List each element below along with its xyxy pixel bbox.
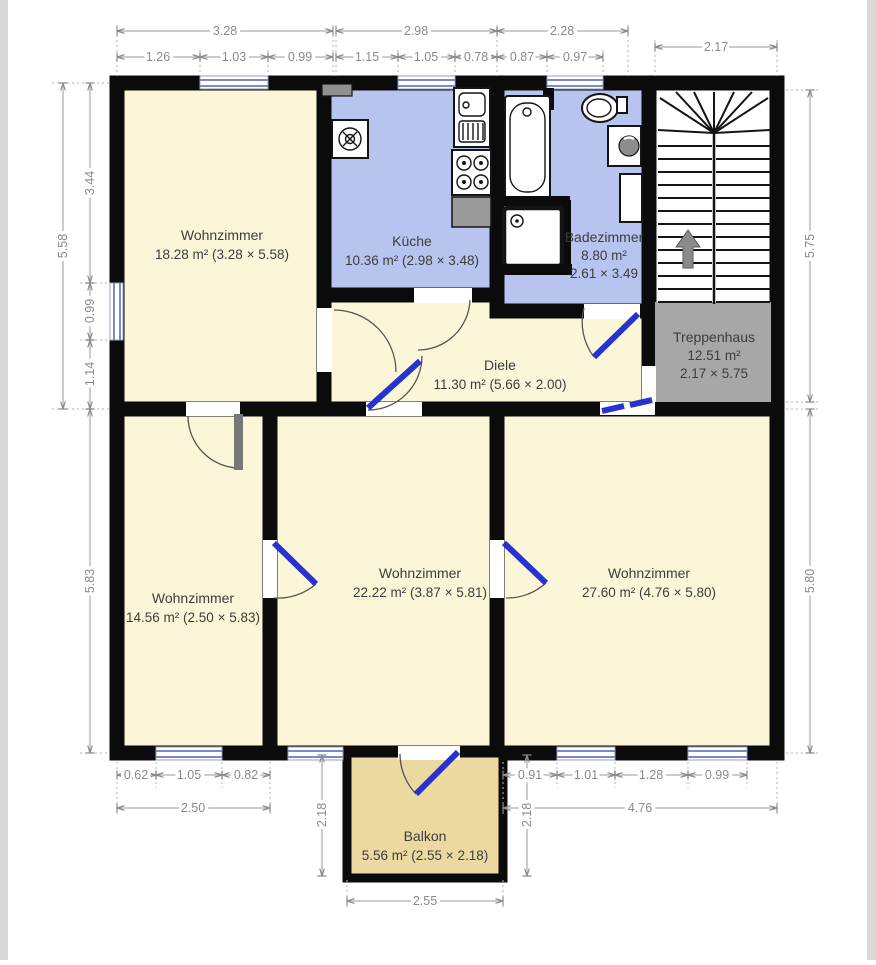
room-label-name: Wohnzimmer: [181, 227, 264, 243]
dim-label: 0.97: [563, 50, 587, 64]
room-wohnzimmer-bottom-left: [117, 409, 270, 753]
dim-label: 2.55: [413, 894, 437, 908]
dim-label: 1.03: [222, 50, 246, 64]
room-label-name: Küche: [392, 233, 432, 249]
window: [557, 747, 615, 760]
room-wohnzimmer-top-left: [117, 83, 324, 409]
dim-label: 2.17: [704, 40, 728, 54]
room-label-area: 12.51 m²: [687, 348, 741, 363]
room-label-area: 5.56 m² (2.55 × 2.18): [362, 848, 488, 863]
window: [288, 747, 343, 760]
dim-label: 1.26: [146, 50, 170, 64]
dim-label: 0.82: [234, 768, 258, 782]
room-label-area: 8.80 m²: [581, 248, 627, 263]
dim-label: 1.15: [355, 50, 379, 64]
dim-label: 5.80: [803, 569, 817, 593]
room-label-area: 22.22 m² (3.87 × 5.81): [353, 585, 487, 600]
dim-label: 0.91: [518, 768, 542, 782]
page-edge-left: [0, 0, 8, 960]
bathtub: [505, 96, 550, 198]
dim-label: 1.05: [414, 50, 438, 64]
dim-label: 0.78: [464, 50, 488, 64]
stove: [452, 150, 491, 195]
room-label-name: Wohnzimmer: [152, 590, 235, 606]
dim-label: 1.14: [83, 362, 97, 386]
window: [688, 747, 747, 760]
bathroom-sink: [608, 126, 641, 166]
room-label-name: Balkon: [404, 828, 447, 844]
dim-label: 5.58: [56, 234, 70, 258]
window: [200, 76, 268, 89]
dim-label: 0.99: [705, 768, 729, 782]
floor-plan: 3.28 2.98 2.28 2.17 1.26 1.03 0.99 1.15 …: [0, 0, 876, 960]
dim-label: 1.01: [574, 768, 598, 782]
room-label-size: 2.61 × 3.49: [570, 266, 638, 281]
room-label-area: 11.30 m² (5.66 × 2.00): [434, 377, 567, 392]
window: [398, 76, 455, 89]
dim-label: 5.75: [803, 234, 817, 258]
dim-label: 4.76: [628, 801, 652, 815]
room-label-name: Badezimmer: [565, 229, 644, 245]
page-edge-right: [867, 0, 876, 960]
dim-label: 2.98: [404, 24, 428, 38]
dim-label: 3.44: [83, 171, 97, 195]
dim-label: 2.28: [550, 24, 574, 38]
window: [110, 283, 123, 340]
dim-label: 1.28: [639, 768, 663, 782]
door-leaf: [234, 414, 243, 470]
dim-label: 0.99: [83, 299, 97, 323]
dim-label: 2.50: [181, 801, 205, 815]
room-wohnzimmer-bottom-right: [497, 409, 777, 753]
room-label-name: Treppenhaus: [673, 329, 755, 345]
dim-label: 1.05: [177, 768, 201, 782]
room-wohnzimmer-bottom-middle: [270, 409, 497, 753]
kitchen-counter: [452, 197, 491, 227]
washing-machine: [332, 120, 368, 158]
room-label-area: 14.56 m² (2.50 × 5.83): [126, 610, 260, 625]
dim-label: 5.83: [83, 569, 97, 593]
room-label-name: Wohnzimmer: [608, 565, 691, 581]
shower: [504, 208, 562, 266]
kitchen-sink: [454, 88, 490, 147]
room-label-area: 27.60 m² (4.76 × 5.80): [582, 585, 716, 600]
room-label-size: 2.17 × 5.75: [680, 366, 748, 381]
wall-stub: [502, 196, 570, 206]
kitchen-flue: [322, 84, 352, 96]
dim-label: 0.62: [124, 768, 148, 782]
room-label-area: 10.36 m² (2.98 × 3.48): [345, 253, 479, 268]
window: [547, 76, 603, 89]
room-label-name: Diele: [484, 357, 516, 373]
dim-label: 2.18: [315, 803, 329, 827]
wall-stub: [502, 264, 572, 275]
window: [156, 747, 222, 760]
bathroom-cabinet: [620, 174, 642, 222]
room-label-name: Wohnzimmer: [379, 565, 462, 581]
dim-label: 3.28: [213, 24, 237, 38]
floor-plan-page: 3.28 2.98 2.28 2.17 1.26 1.03 0.99 1.15 …: [0, 0, 876, 960]
dim-label: 2.18: [520, 803, 534, 827]
dim-label: 0.99: [288, 50, 312, 64]
room-label-area: 18.28 m² (3.28 × 5.58): [155, 247, 289, 262]
dim-label: 0.87: [510, 50, 534, 64]
